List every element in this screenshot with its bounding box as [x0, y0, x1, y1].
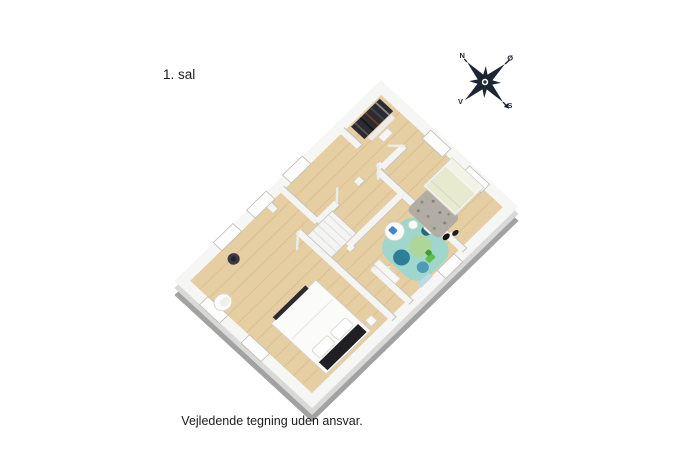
- disclaimer-text: Vejledende tegning uden ansvar.: [181, 414, 362, 428]
- compass-e: Ø: [507, 54, 513, 63]
- wall-kids-west: [348, 246, 352, 250]
- floorplan-page: 1. sal: [0, 0, 687, 457]
- compass-rose: N Ø S V: [431, 26, 541, 136]
- floorplan-figure: 1. sal: [0, 0, 687, 457]
- compass-n: N: [459, 51, 464, 60]
- building-plan: [174, 80, 519, 409]
- compass-s: S: [507, 101, 512, 110]
- compass-w: V: [458, 97, 463, 106]
- page-title: 1. sal: [163, 67, 195, 82]
